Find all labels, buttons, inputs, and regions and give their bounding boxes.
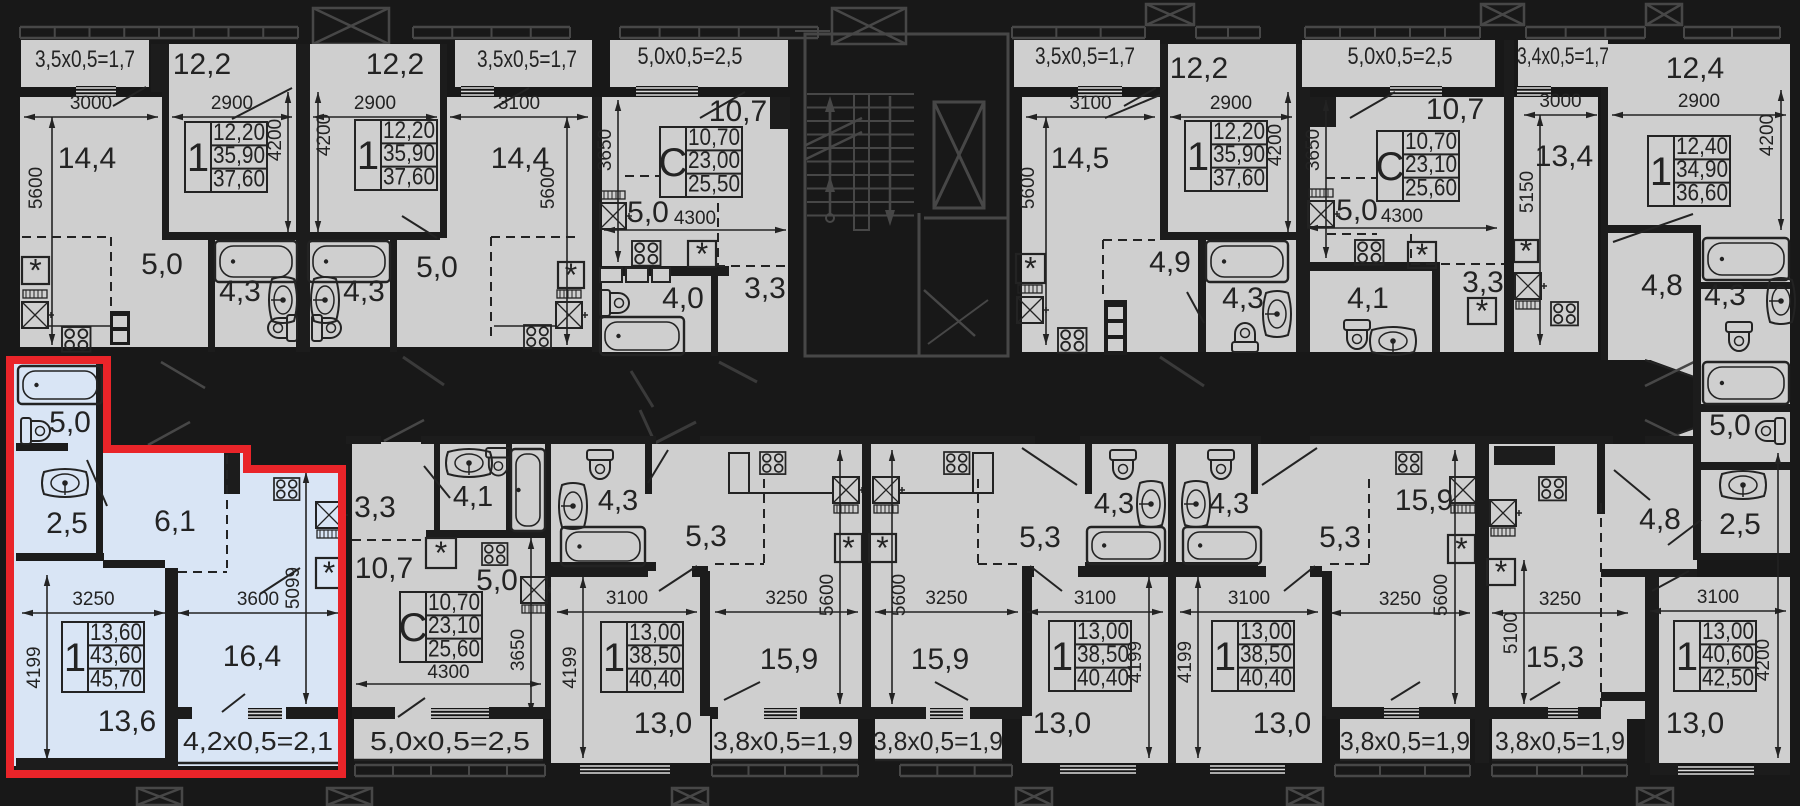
svg-text:5,0: 5,0 xyxy=(49,406,91,439)
svg-text:2900: 2900 xyxy=(1210,93,1252,114)
svg-text:15,9: 15,9 xyxy=(911,643,969,676)
svg-text:2900: 2900 xyxy=(1678,91,1720,112)
svg-text:3100: 3100 xyxy=(1074,588,1116,609)
svg-text:*: * xyxy=(1476,293,1488,329)
svg-text:3250: 3250 xyxy=(1539,589,1581,610)
svg-text:5600: 5600 xyxy=(26,167,47,209)
svg-text:3100: 3100 xyxy=(1069,93,1111,114)
svg-text:13,6: 13,6 xyxy=(98,705,156,738)
svg-text:6,1: 6,1 xyxy=(154,505,196,538)
svg-text:3650: 3650 xyxy=(1303,129,1324,171)
svg-text:3000: 3000 xyxy=(1539,91,1581,112)
svg-text:3,5х0,5=1,7: 3,5х0,5=1,7 xyxy=(477,46,577,73)
svg-text:3250: 3250 xyxy=(925,588,967,609)
svg-text:15,9: 15,9 xyxy=(760,643,818,676)
svg-text:1: 1 xyxy=(1214,635,1236,679)
svg-text:2,5: 2,5 xyxy=(46,507,88,540)
svg-text:3,8х0,5=1,9: 3,8х0,5=1,9 xyxy=(1495,726,1625,756)
svg-text:13,0: 13,0 xyxy=(1253,707,1311,740)
svg-text:5,0: 5,0 xyxy=(141,248,183,281)
svg-text:4200: 4200 xyxy=(1265,124,1286,166)
svg-text:5,0х0,5=2,5: 5,0х0,5=2,5 xyxy=(638,43,743,70)
svg-text:16,4: 16,4 xyxy=(223,640,281,673)
svg-text:4,3: 4,3 xyxy=(1222,282,1264,315)
svg-text:14,5: 14,5 xyxy=(1051,142,1109,175)
svg-text:4,3: 4,3 xyxy=(219,275,261,308)
svg-text:36,60: 36,60 xyxy=(1676,180,1728,207)
svg-text:5,3: 5,3 xyxy=(685,520,727,553)
svg-text:1: 1 xyxy=(1676,635,1698,679)
svg-text:37,60: 37,60 xyxy=(383,164,435,191)
svg-text:5,0: 5,0 xyxy=(1709,409,1751,442)
svg-text:*: * xyxy=(1024,251,1036,287)
svg-text:4,8: 4,8 xyxy=(1641,269,1683,302)
svg-text:3100: 3100 xyxy=(498,93,540,114)
svg-text:37,60: 37,60 xyxy=(1213,165,1265,192)
svg-text:4,9: 4,9 xyxy=(1149,246,1191,279)
svg-text:*: * xyxy=(696,236,708,272)
svg-text:4,3: 4,3 xyxy=(1704,279,1746,312)
svg-text:*: * xyxy=(565,257,577,293)
svg-text:*: * xyxy=(876,530,888,566)
svg-text:4,2х0,5=2,1: 4,2х0,5=2,1 xyxy=(183,726,333,756)
svg-text:12,2: 12,2 xyxy=(366,48,424,81)
svg-text:*: * xyxy=(842,530,854,566)
svg-text:4,0: 4,0 xyxy=(662,282,704,315)
svg-text:13,0: 13,0 xyxy=(1666,707,1724,740)
svg-text:3250: 3250 xyxy=(1379,589,1421,610)
svg-text:4,3: 4,3 xyxy=(343,275,385,308)
svg-text:5,3: 5,3 xyxy=(1019,521,1061,554)
svg-text:5,0: 5,0 xyxy=(627,196,669,229)
svg-text:2900: 2900 xyxy=(354,93,396,114)
svg-text:1: 1 xyxy=(64,636,86,680)
svg-text:3,5х0,5=1,7: 3,5х0,5=1,7 xyxy=(1035,43,1135,70)
svg-text:40,40: 40,40 xyxy=(629,666,681,693)
svg-text:3100: 3100 xyxy=(606,588,648,609)
svg-text:4,3: 4,3 xyxy=(1209,488,1249,520)
svg-text:37,60: 37,60 xyxy=(213,166,265,193)
svg-text:25,60: 25,60 xyxy=(1405,175,1457,202)
svg-text:3100: 3100 xyxy=(1228,588,1270,609)
svg-text:5100: 5100 xyxy=(1501,612,1522,654)
svg-text:3,3: 3,3 xyxy=(354,491,396,524)
svg-text:1: 1 xyxy=(187,136,209,180)
svg-text:25,50: 25,50 xyxy=(688,171,740,198)
svg-text:12,2: 12,2 xyxy=(173,48,231,81)
svg-text:12,2: 12,2 xyxy=(1170,52,1228,85)
svg-text:1: 1 xyxy=(603,636,625,680)
svg-text:4300: 4300 xyxy=(427,662,469,683)
svg-text:5600: 5600 xyxy=(538,167,559,209)
svg-text:5,0: 5,0 xyxy=(1336,194,1378,227)
svg-text:4,3: 4,3 xyxy=(1094,488,1134,520)
svg-text:40,40: 40,40 xyxy=(1077,665,1129,692)
svg-text:2,5: 2,5 xyxy=(1719,508,1761,541)
svg-text:12,4: 12,4 xyxy=(1666,52,1724,85)
svg-text:1: 1 xyxy=(1051,635,1073,679)
svg-text:13,0: 13,0 xyxy=(634,707,692,740)
svg-text:5,0х0,5=2,5: 5,0х0,5=2,5 xyxy=(370,726,530,756)
svg-text:*: * xyxy=(1495,554,1507,590)
svg-text:4199: 4199 xyxy=(560,646,581,688)
svg-text:5150: 5150 xyxy=(1517,171,1538,213)
svg-text:1: 1 xyxy=(1187,135,1209,179)
svg-text:4,3: 4,3 xyxy=(598,485,638,517)
svg-text:3,8х0,5=1,9: 3,8х0,5=1,9 xyxy=(713,726,853,756)
svg-text:*: * xyxy=(323,555,335,591)
svg-text:3,8х0,5=1,9: 3,8х0,5=1,9 xyxy=(873,726,1003,756)
svg-text:1: 1 xyxy=(1650,150,1672,194)
svg-text:*: * xyxy=(29,253,41,289)
svg-text:4199: 4199 xyxy=(1175,641,1196,683)
svg-text:4300: 4300 xyxy=(1381,206,1423,227)
svg-text:4200: 4200 xyxy=(265,119,286,161)
svg-text:3,5х0,5=1,7: 3,5х0,5=1,7 xyxy=(35,46,135,73)
svg-text:3650: 3650 xyxy=(508,629,529,671)
svg-text:15,9: 15,9 xyxy=(1395,484,1453,517)
svg-text:4,8: 4,8 xyxy=(1639,503,1681,536)
svg-text:13,4: 13,4 xyxy=(1535,140,1593,173)
svg-text:3650: 3650 xyxy=(595,129,616,171)
svg-text:С: С xyxy=(399,606,428,650)
svg-text:14,4: 14,4 xyxy=(58,142,116,175)
svg-text:1: 1 xyxy=(357,134,379,178)
svg-text:3,4х0,5=1,7: 3,4х0,5=1,7 xyxy=(1517,43,1609,70)
svg-text:3600: 3600 xyxy=(237,589,279,610)
svg-text:25,60: 25,60 xyxy=(428,636,480,663)
svg-text:3,3: 3,3 xyxy=(744,272,786,305)
svg-text:10,7: 10,7 xyxy=(1426,93,1484,126)
svg-text:5600: 5600 xyxy=(889,574,910,616)
svg-text:15,3: 15,3 xyxy=(1526,641,1584,674)
svg-text:3000: 3000 xyxy=(70,93,112,114)
svg-text:40,40: 40,40 xyxy=(1240,665,1292,692)
svg-text:4,1: 4,1 xyxy=(453,481,493,513)
svg-text:10,7: 10,7 xyxy=(355,552,413,585)
svg-text:4200: 4200 xyxy=(1757,114,1778,156)
svg-text:13,0: 13,0 xyxy=(1033,707,1091,740)
svg-text:*: * xyxy=(435,535,447,571)
svg-text:3100: 3100 xyxy=(1697,587,1739,608)
svg-text:3250: 3250 xyxy=(765,588,807,609)
svg-text:5600: 5600 xyxy=(1018,167,1039,209)
svg-text:45,70: 45,70 xyxy=(90,666,142,693)
svg-text:42,50: 42,50 xyxy=(1702,665,1754,692)
svg-text:5,0х0,5=2,5: 5,0х0,5=2,5 xyxy=(1348,43,1453,70)
svg-text:4200: 4200 xyxy=(314,114,335,156)
svg-text:3,8х0,5=1,9: 3,8х0,5=1,9 xyxy=(1340,726,1470,756)
svg-text:5,3: 5,3 xyxy=(1319,521,1361,554)
svg-text:*: * xyxy=(1455,531,1467,567)
svg-text:5600: 5600 xyxy=(817,574,838,616)
svg-text:С: С xyxy=(659,141,688,185)
svg-text:4199: 4199 xyxy=(24,646,45,688)
svg-text:*: * xyxy=(1416,237,1428,273)
svg-text:*: * xyxy=(1520,233,1532,269)
svg-text:5600: 5600 xyxy=(1431,574,1452,616)
svg-text:3250: 3250 xyxy=(72,589,114,610)
svg-text:4,1: 4,1 xyxy=(1347,282,1389,315)
svg-text:4300: 4300 xyxy=(674,208,716,229)
svg-text:5,0: 5,0 xyxy=(416,251,458,284)
svg-text:С: С xyxy=(1376,145,1405,189)
